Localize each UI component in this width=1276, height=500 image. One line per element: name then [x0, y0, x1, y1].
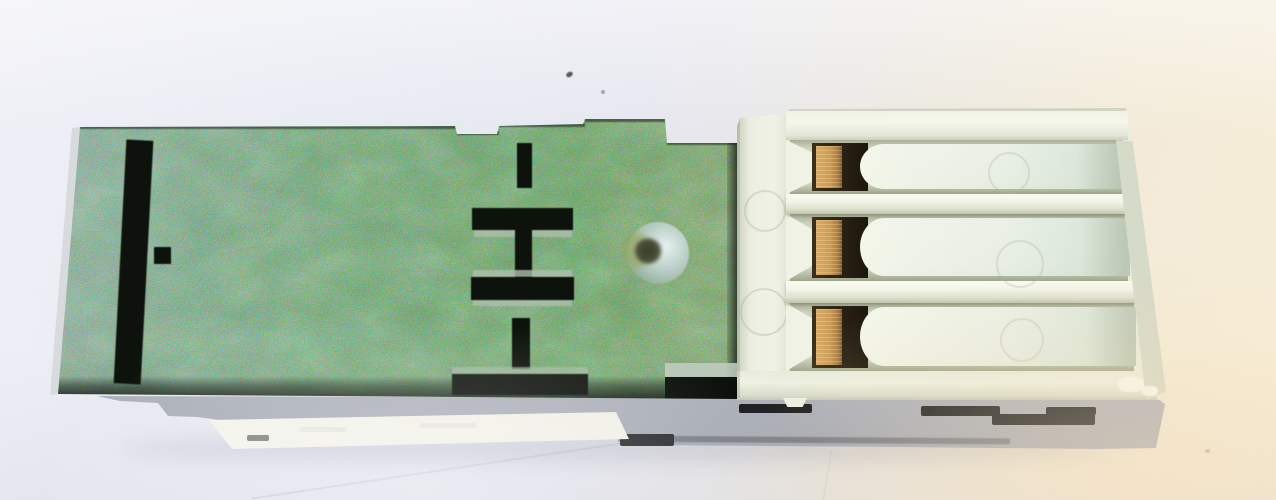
- window-core: [633, 238, 663, 264]
- connector-left-edge-line: [737, 118, 740, 398]
- mold-circle-mark: [1000, 318, 1044, 362]
- sticker-ink-mark: [247, 435, 269, 441]
- pcb-slot-horizontal-2: [471, 277, 574, 300]
- pcb-bottom-edge-shadow: [58, 376, 738, 399]
- mold-circle-mark: [988, 152, 1030, 194]
- pcb-slot-notch: [154, 247, 171, 264]
- connector-top-rail: [786, 108, 1128, 140]
- slot-edge-highlight: [473, 270, 572, 277]
- translucent-window: [627, 222, 689, 284]
- mold-circle-mark: [740, 288, 788, 336]
- connector-left-column: [737, 115, 790, 400]
- terminal-channel: [790, 140, 1122, 194]
- side-vent-slot: [921, 406, 1000, 416]
- plastic-chip-highlight: [1142, 386, 1158, 396]
- mold-circle-mark: [996, 240, 1044, 288]
- terminal-channel: [790, 214, 1128, 281]
- side-vent-slot: [620, 434, 674, 446]
- channel-slider-bar: [860, 218, 1130, 276]
- plastic-chip-highlight: [1118, 377, 1144, 392]
- pcb-right-edge-shadow: [727, 143, 738, 396]
- slot-edge-highlight: [452, 367, 588, 374]
- pcb-top-edge-line: [667, 141, 737, 145]
- mold-circle-mark: [744, 190, 786, 232]
- sticker-faint-print: [300, 427, 346, 432]
- pcb-corner-highlight: [665, 363, 738, 377]
- pcb-top-edge-line: [80, 125, 457, 129]
- connector-top-edge-line: [788, 108, 1128, 111]
- pcb-slot-center-top: [517, 143, 532, 188]
- channel-divider-rail: [786, 281, 1138, 303]
- channel-divider-rail: [786, 194, 1134, 214]
- sticker-faint-print: [420, 423, 476, 428]
- pcb-slot-horizontal-1: [472, 208, 573, 230]
- connector-bottom-rail: [737, 371, 1157, 400]
- pcb-slot-center-bottom: [512, 318, 530, 369]
- pcb-top-edge-line: [457, 131, 499, 135]
- side-vent-slot: [1046, 407, 1096, 415]
- brass-contact: [816, 309, 842, 365]
- side-vent-slot: [992, 414, 1095, 425]
- pcb-top-edge-line: [585, 118, 665, 122]
- brass-contact: [816, 220, 842, 275]
- background-speck: [601, 90, 605, 94]
- photo-stage: [0, 0, 1276, 500]
- slot-edge-highlight: [473, 300, 572, 306]
- pcb-top-edge-line: [499, 123, 585, 127]
- channel-slider-bar: [860, 307, 1136, 366]
- background-speck: [565, 71, 574, 79]
- brass-contact: [816, 146, 842, 188]
- terminal-channel: [790, 303, 1134, 371]
- background-speck: [1205, 449, 1210, 453]
